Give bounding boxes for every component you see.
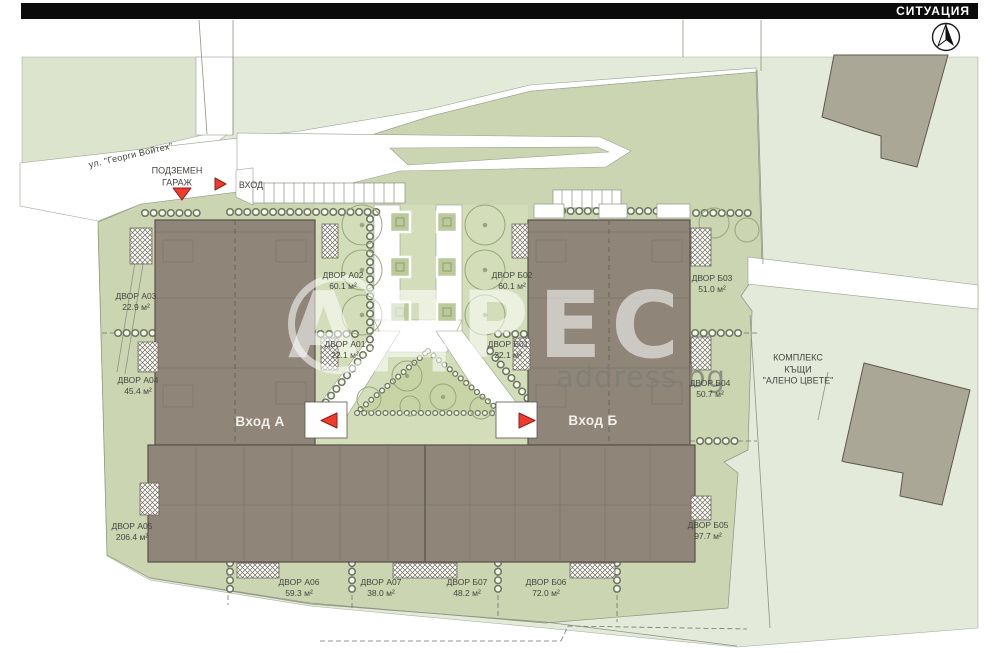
neighbor-complex-label: КОМПЛЕКС КЪЩИ "АЛЕНО ЦВЕТЕ" [763, 352, 834, 387]
yard-label: ДВОР А0738.0 м² [361, 577, 402, 599]
yard-label: ДВОР Б0450.7 м² [690, 378, 731, 400]
vertical-road [196, 57, 233, 135]
yard-label: ДВОР Б0122.1 м² [488, 339, 529, 361]
yard-label: ДВОР А05206.4 м² [112, 521, 153, 543]
yard-label: ДВОР А0122.1 м² [325, 339, 366, 361]
yard-label: ДВОР Б0597.7 м² [688, 520, 729, 542]
page-title: СИТУАЦИЯ [896, 4, 970, 18]
yard-label: ДВОР Б0351.0 м² [692, 273, 733, 295]
yard-label: ДВОР Б0748.2 м² [447, 577, 488, 599]
yard-label: ДВОР А0659.3 м² [279, 577, 320, 599]
entrance-b-label: Вход Б [568, 412, 617, 430]
drive-entrance-label: ВХОД [239, 180, 263, 192]
yard-label: ДВОР Б0672.0 м² [526, 577, 567, 599]
title-bar: СИТУАЦИЯ [21, 3, 978, 19]
north-arrow-icon [933, 24, 960, 51]
yard-label: ДВОР Б0260.1 м² [492, 270, 533, 292]
yard-label: ДВОР А0260.1 м² [323, 270, 364, 292]
building-lower-wing [148, 445, 695, 562]
yard-label: ДВОР А0445.4 м² [118, 375, 159, 397]
underground-garage-label: ПОДЗЕМЕН ГАРАЖ [152, 165, 203, 188]
entrance-a-label: Вход А [235, 413, 284, 431]
yard-label: ДВОР А0322.9 м² [116, 291, 157, 313]
site-plan-page: АДРЕС address.bg СИТУАЦИЯ ул. "Георги Во… [0, 0, 1000, 666]
